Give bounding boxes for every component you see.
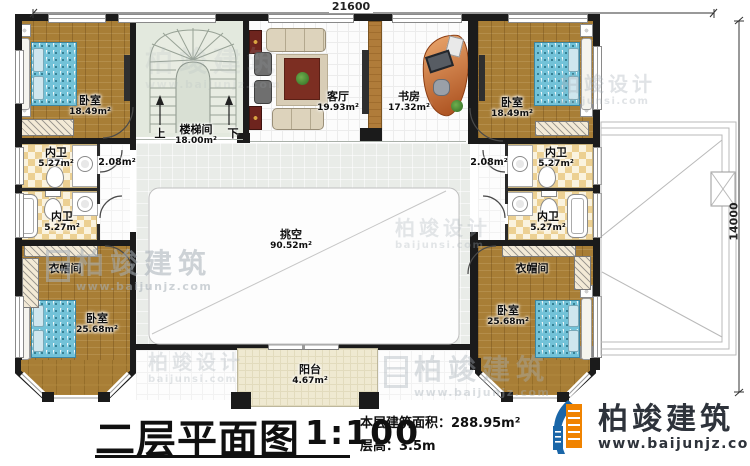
room-area: 18.00m² — [175, 136, 217, 146]
sink — [512, 196, 528, 212]
roof-plan — [601, 122, 736, 355]
floor-height-info: 层高：3.5m — [360, 435, 436, 454]
wall — [97, 224, 100, 240]
room-label-bath-right-1: 内卫 5.27m² — [538, 147, 574, 169]
bed-headboard — [581, 298, 592, 360]
wall — [505, 144, 508, 156]
room-area: 18.49m² — [491, 109, 533, 119]
tv-cabinet — [249, 30, 262, 54]
floor-area-info: 本层建筑面积：288.95m² — [360, 412, 520, 431]
sink — [512, 156, 528, 172]
wall — [237, 336, 268, 348]
wall — [136, 344, 237, 350]
window — [508, 14, 588, 23]
room-area: 25.68m² — [487, 317, 529, 327]
window — [392, 14, 462, 23]
pillow — [33, 48, 44, 72]
toilet — [541, 190, 557, 197]
tv — [479, 55, 485, 101]
pillow — [33, 330, 44, 352]
brand-name: 柏竣建筑 — [598, 403, 750, 436]
room-area: 5.27m² — [530, 223, 566, 233]
bathtub — [567, 194, 588, 238]
nightstand — [580, 24, 593, 37]
room-label-living: 客厅 19.93m² — [317, 91, 359, 113]
wall — [97, 174, 100, 204]
window — [15, 296, 24, 358]
room-area: 17.32m² — [388, 103, 430, 113]
window — [593, 193, 602, 238]
terrace-left — [136, 350, 237, 400]
bed-headboard — [581, 38, 592, 110]
brand-logo-icon — [548, 398, 590, 456]
room-name: 卧室 — [487, 305, 529, 317]
room-name: 卧室 — [69, 95, 111, 107]
room-stairwell — [136, 20, 243, 137]
window — [593, 296, 602, 358]
room-name: 挑空 — [270, 229, 312, 241]
room-name: 内卫 — [38, 147, 74, 159]
window — [268, 14, 354, 23]
brand-logo: 柏竣建筑 www.baijunjz.com — [548, 398, 750, 456]
pillow — [568, 76, 579, 100]
cabinet — [368, 21, 382, 138]
room-name: 内卫 — [44, 211, 80, 223]
wall-pillar — [237, 133, 250, 143]
wall — [505, 174, 508, 204]
sofa — [266, 28, 326, 52]
window — [593, 147, 602, 185]
wall — [20, 188, 98, 191]
wall — [468, 138, 600, 144]
wall — [337, 336, 382, 348]
room-label-bedroom-top-right: 卧室 18.49m² — [491, 97, 533, 119]
wall — [97, 144, 100, 156]
tv-cabinet — [249, 106, 262, 130]
stair-down-label: 下 — [228, 125, 239, 141]
room-label-bedroom-top-left: 卧室 18.49m² — [69, 95, 111, 117]
toilet — [45, 190, 61, 197]
room-name: 楼梯间 — [175, 124, 217, 136]
room-label-stairwell: 楼梯间 18.00m² — [175, 124, 217, 146]
room-area: 19.93m² — [317, 103, 359, 113]
wall — [468, 14, 478, 141]
bay-window-left — [18, 358, 133, 402]
sink — [77, 156, 93, 172]
dimension-top: 21600 — [329, 0, 373, 13]
window — [15, 193, 24, 238]
pillow — [568, 305, 579, 327]
balcony-sliding-door — [268, 336, 339, 350]
room-label-bath-left-2: 内卫 5.27m² — [44, 211, 80, 233]
room-area: 18.49m² — [69, 107, 111, 117]
brand-site: www.baijunjz.com — [598, 436, 750, 452]
room-area: 5.27m² — [538, 159, 574, 169]
window — [118, 14, 216, 23]
wardrobe — [20, 119, 74, 136]
wardrobe — [22, 258, 39, 308]
pillow — [568, 48, 579, 72]
wall — [243, 14, 249, 143]
room-name: 卧室 — [491, 97, 533, 109]
room-label-cloak-right: 衣帽间 — [516, 260, 549, 276]
sink — [77, 196, 93, 212]
room-area: 5.27m² — [38, 159, 74, 169]
pillow — [568, 330, 579, 352]
window — [15, 147, 24, 185]
office-chair — [433, 79, 450, 96]
terrace-right — [378, 350, 470, 400]
corridor-left-area: 2.08m² — [98, 157, 136, 168]
wall — [470, 240, 600, 246]
wardrobe — [535, 121, 589, 136]
room-label-bedroom-bottom-left: 卧室 25.68m² — [76, 313, 118, 335]
room-area: 90.52m² — [270, 241, 312, 251]
title-underline — [95, 455, 350, 458]
room-name: 内卫 — [530, 211, 566, 223]
room-area: 5.27m² — [44, 223, 80, 233]
room-name: 书房 — [388, 91, 430, 103]
wall — [470, 232, 478, 370]
floor-plan: 卧室 18.49m² 卧室 18.49m² 上 下 楼梯间 18.00m² 客厅… — [0, 0, 750, 466]
room-label-bedroom-bottom-right: 卧室 25.68m² — [487, 305, 529, 327]
window — [15, 50, 24, 104]
wall — [507, 188, 593, 191]
wall-pillar — [360, 128, 382, 142]
room-area: 25.68m² — [76, 325, 118, 335]
room-name: 内卫 — [538, 147, 574, 159]
plant — [296, 72, 309, 85]
room-label-balcony: 阳台 4.67m² — [292, 364, 328, 386]
wall — [378, 344, 470, 350]
dimension-right: 14000 — [728, 200, 741, 244]
wall — [15, 240, 136, 246]
bay-window-right — [478, 358, 593, 402]
room-label-bath-right-2: 内卫 5.27m² — [530, 211, 566, 233]
plant — [451, 100, 463, 112]
stair-up-label: 上 — [155, 125, 166, 141]
room-label-bath-left-1: 内卫 5.27m² — [38, 147, 74, 169]
wall — [15, 138, 136, 144]
window — [48, 14, 106, 23]
room-name: 阳台 — [292, 364, 328, 376]
room-label-study: 书房 17.32m² — [388, 91, 430, 113]
wardrobe — [574, 256, 591, 290]
pillow — [33, 76, 44, 100]
wall — [505, 224, 508, 240]
armchair — [254, 80, 272, 104]
window — [593, 46, 602, 110]
room-name: 卧室 — [76, 313, 118, 325]
corridor-right-area: 2.08m² — [470, 157, 508, 168]
room-area: 4.67m² — [292, 376, 328, 386]
balcony-pillar — [359, 392, 379, 409]
room-label-cloak-left: 衣帽间 — [49, 260, 82, 276]
pillow — [33, 305, 44, 327]
tv — [362, 50, 369, 114]
wall — [130, 14, 136, 150]
room-label-void: 挑空 90.52m² — [270, 229, 312, 251]
armchair — [254, 52, 272, 76]
room-name: 客厅 — [317, 91, 359, 103]
